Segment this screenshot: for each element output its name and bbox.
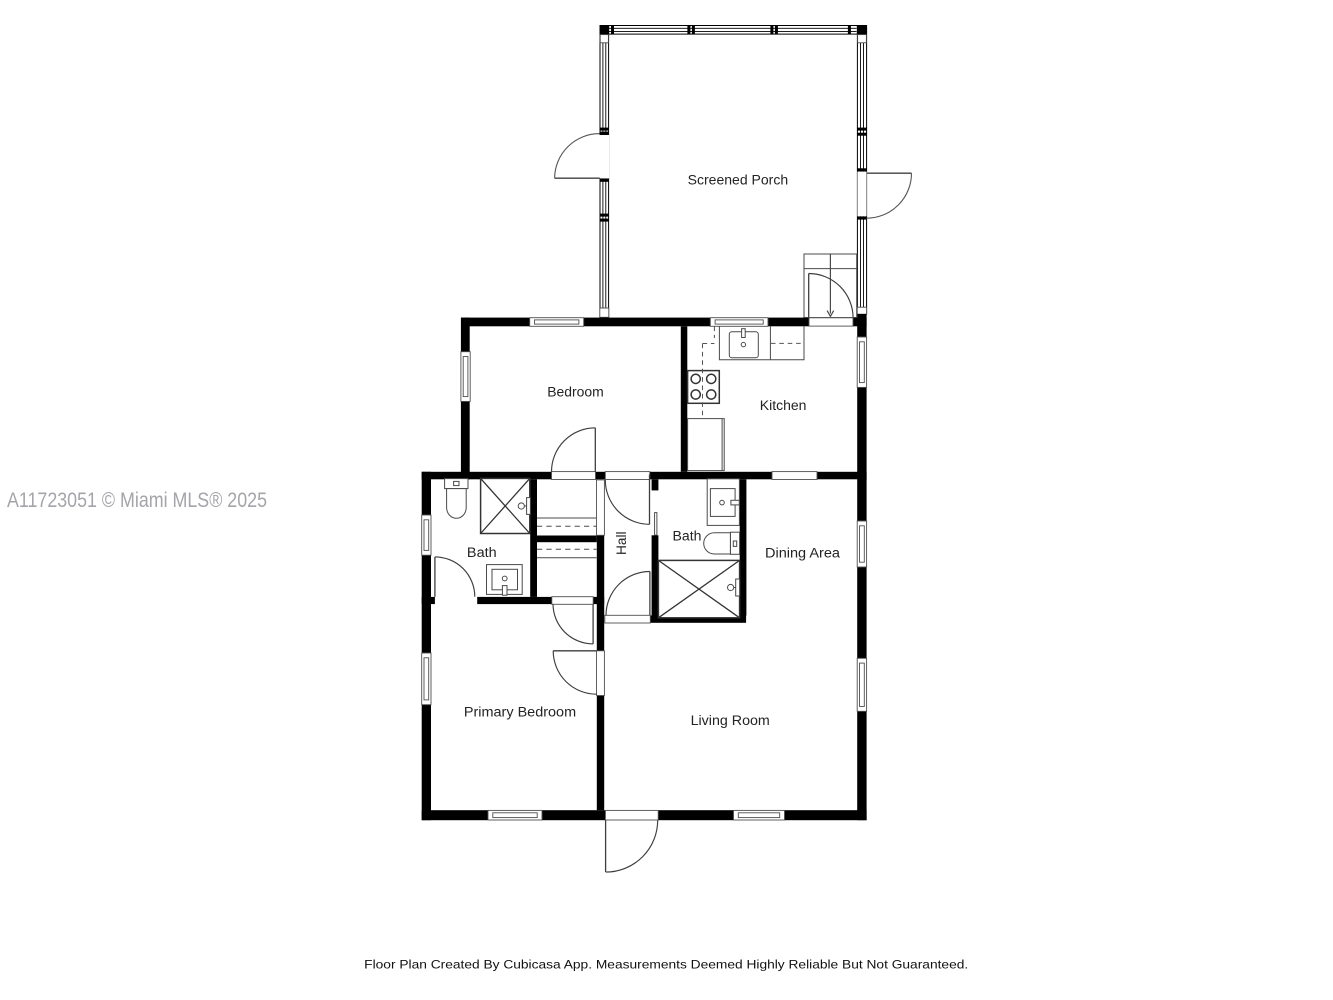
svg-text:Hall: Hall bbox=[614, 531, 629, 555]
svg-text:Screened Porch: Screened Porch bbox=[688, 172, 789, 187]
svg-text:Floor Plan Created By Cubicasa: Floor Plan Created By Cubicasa App. Meas… bbox=[364, 958, 968, 972]
svg-text:A11723051 © Miami MLS® 2025: A11723051 © Miami MLS® 2025 bbox=[7, 488, 267, 512]
svg-text:Kitchen: Kitchen bbox=[760, 398, 807, 413]
svg-text:Living Room: Living Room bbox=[691, 713, 770, 728]
svg-text:Bath: Bath bbox=[673, 529, 702, 544]
svg-text:Bath: Bath bbox=[467, 545, 497, 560]
svg-text:Bedroom: Bedroom bbox=[547, 385, 604, 400]
svg-text:Dining Area: Dining Area bbox=[765, 546, 841, 561]
svg-text:Primary Bedroom: Primary Bedroom bbox=[464, 705, 576, 720]
